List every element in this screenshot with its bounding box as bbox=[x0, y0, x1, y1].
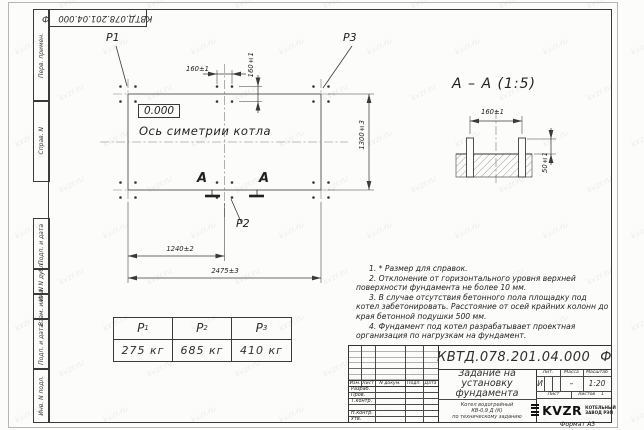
logo-coil-icon bbox=[531, 404, 539, 416]
point-label-p3: P3 bbox=[343, 31, 357, 44]
point-label-p1: P1 bbox=[106, 31, 120, 44]
elevation-mark: 0.000 bbox=[138, 104, 180, 118]
load-table-value-p3: 410 кг bbox=[232, 340, 291, 362]
dim-mid-span: 1240±2 bbox=[150, 245, 210, 253]
title-block: Изм. Лист N докум. Подп. Дата Разраб. Пр… bbox=[348, 345, 612, 423]
boiler-symmetry-axis-label: Ось симетрии котла bbox=[139, 124, 271, 138]
dim-depth: 1300±3 bbox=[358, 120, 366, 150]
load-table-header-p2: Р2 bbox=[173, 318, 232, 340]
note-3: 3. В случае отсутствия бетонного пола пл… bbox=[356, 293, 612, 322]
load-table-header-p3: Р3 bbox=[232, 318, 291, 340]
technical-notes: 1. * Размер для справок. 2. Отклонение о… bbox=[356, 264, 612, 341]
note-4: 4. Фундамент под котел разрабатывает про… bbox=[356, 322, 612, 341]
tb-col-podp: Подп. bbox=[405, 380, 423, 386]
tb-scale-value: 1:20 bbox=[583, 376, 611, 391]
load-table-header-p1: Р1 bbox=[114, 318, 173, 340]
drawing-sheet: kvzr.rukvzr.rukvzr.rukvzr.rukvzr.rukvzr.… bbox=[0, 0, 644, 430]
tb-scale-label: Масштаб bbox=[583, 369, 611, 376]
tb-lit-label: Лит. bbox=[536, 369, 560, 376]
note-1: 1. * Размер для справок. bbox=[356, 264, 612, 274]
tb-sheet-label: Лист bbox=[536, 391, 571, 398]
revision-rows bbox=[349, 346, 438, 380]
tb-lit-value: И bbox=[536, 376, 544, 391]
load-table-value-p1: 275 кг bbox=[114, 340, 173, 362]
tb-col-docnum: N докум. bbox=[375, 380, 405, 386]
format-label: Формат А3 bbox=[560, 421, 595, 428]
logo-text: KVZR bbox=[542, 403, 582, 418]
note-2: 2. Отклонение от горизонтального уровня … bbox=[356, 274, 612, 293]
dim-section-bolt-spacing: 160±1 bbox=[481, 108, 504, 116]
dim-bolt-spacing-y: 160±1 bbox=[247, 52, 255, 77]
dim-total-width: 2475±3 bbox=[195, 267, 255, 275]
point-label-p2: P2 bbox=[236, 217, 250, 230]
section-view-title: А – А (1:5) bbox=[452, 76, 536, 92]
tb-mass-value: – bbox=[560, 376, 583, 391]
logo-caption: КОТЕЛЬНЫЙ ЗАВОД РЭП bbox=[585, 405, 616, 415]
tb-mass-label: Масса bbox=[560, 369, 583, 376]
tb-col-data: Дата bbox=[423, 380, 438, 386]
tb-drawing-title: Задание на установку фундамента bbox=[438, 369, 536, 399]
kvzr-logo: KVZR КОТЕЛЬНЫЙ ЗАВОД РЭП bbox=[536, 398, 611, 422]
section-letter-right: А bbox=[259, 171, 269, 186]
section-letter-left: А bbox=[197, 171, 207, 186]
load-table-value-p2: 685 кг bbox=[173, 340, 232, 362]
anchor-load-table: Р1 Р2 Р3 275 кг 685 кг 410 кг bbox=[113, 317, 292, 362]
dim-bolt-protrusion: 50±1 bbox=[541, 152, 549, 173]
tb-doc-number: КВТД.078.201.04.000Ф bbox=[438, 346, 611, 369]
dim-bolt-spacing-x: 160±1 bbox=[186, 65, 209, 73]
tb-product-subtitle: Котел водогрейный КВ-0,9 Д (К) по технич… bbox=[438, 399, 536, 422]
tb-sheets-cell: Листов1 bbox=[571, 391, 611, 398]
tb-row-utv: Утв. bbox=[349, 416, 377, 422]
